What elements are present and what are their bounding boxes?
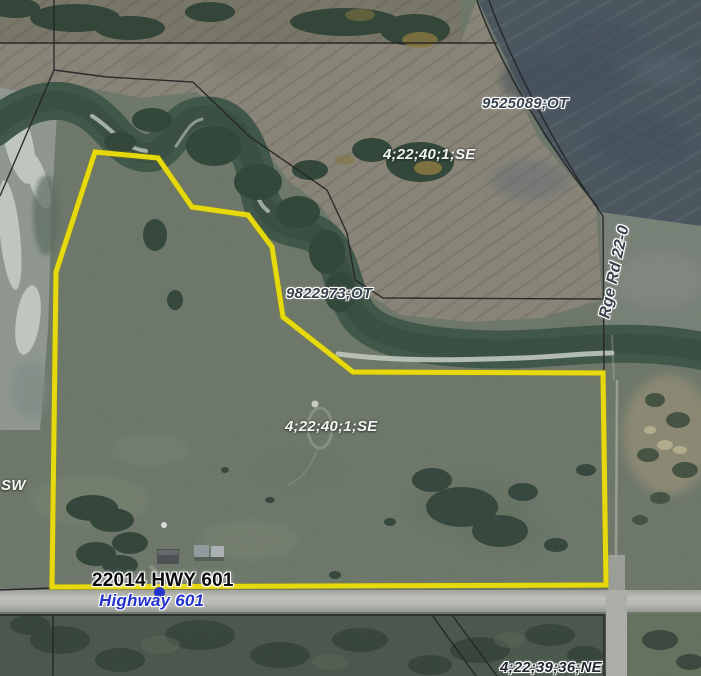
address-point-marker[interactable]	[154, 587, 165, 598]
aerial-imagery	[0, 0, 701, 676]
map-canvas[interactable]: 9525089;OT 4;22;40;1;SE 9822973;OT Rge R…	[0, 0, 701, 676]
noise-overlay-light	[0, 0, 701, 676]
